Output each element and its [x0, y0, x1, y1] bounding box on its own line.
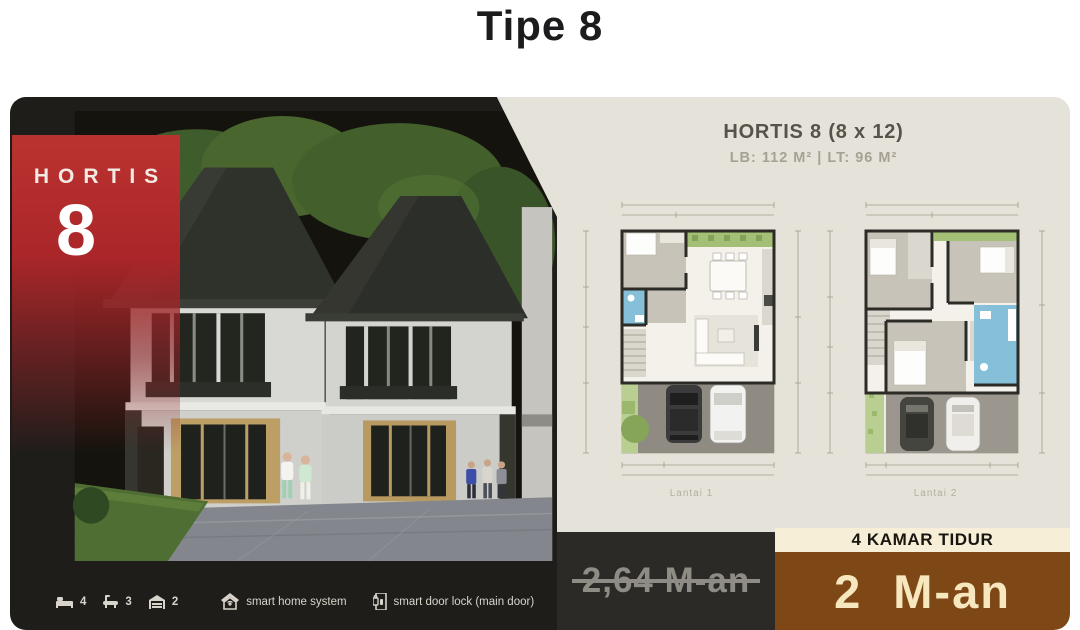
page-title: Tipe 8: [0, 2, 1080, 50]
bath-icon: [103, 595, 118, 608]
garage-feature: 2: [149, 595, 178, 609]
door-lock-label: smart door lock (main door): [394, 596, 535, 608]
garage-count: 2: [172, 596, 178, 608]
bed-icon: [56, 595, 73, 608]
floorplan-lantai-1: Lantai 1: [578, 197, 806, 499]
floorplans: Lantai 1: [557, 197, 1070, 499]
door-lock-feature: smart door lock (main door): [373, 593, 535, 610]
new-price: 2 M-an: [834, 564, 1011, 619]
plan-title: HORTIS 8 (8 x 12): [557, 121, 1070, 144]
old-price: 2,64 M-an: [582, 561, 751, 601]
left-panel: HORTIS 8 4: [10, 97, 557, 630]
bedrooms-count: 4: [80, 596, 86, 608]
garage-icon: [149, 595, 165, 609]
smart-home-icon: [221, 593, 239, 610]
floorplan-2-label: Lantai 2: [822, 488, 1050, 499]
hortis-ribbon: HORTIS 8: [12, 135, 180, 453]
door-lock-icon: [373, 593, 387, 610]
listing-card: HORTIS 8 4: [10, 97, 1070, 630]
smart-home-feature: smart home system: [221, 593, 346, 610]
floorplan-lantai-2: Lantai 2: [822, 197, 1050, 499]
plan-specs: LB: 112 M² | LT: 96 M²: [557, 150, 1070, 166]
floorplan-1-label: Lantai 1: [578, 488, 806, 499]
bedrooms-strip: 4 KAMAR TIDUR: [775, 528, 1070, 552]
type-number: 8: [12, 195, 180, 267]
floorplan-2-drawing: [822, 197, 1050, 481]
right-panel: HORTIS 8 (8 x 12) LB: 112 M² | LT: 96 M²: [557, 97, 1070, 630]
features-row: 4 3 2: [56, 593, 534, 610]
new-price-box: 2 M-an: [775, 552, 1070, 630]
bathrooms-count: 3: [125, 596, 131, 608]
floorplan-1-drawing: [578, 197, 806, 481]
brand-name: HORTIS: [12, 165, 180, 189]
bathrooms-feature: 3: [103, 595, 131, 608]
old-price-box: 2,64 M-an: [557, 532, 775, 630]
bedrooms-feature: 4: [56, 595, 86, 608]
smart-home-label: smart home system: [246, 596, 346, 608]
